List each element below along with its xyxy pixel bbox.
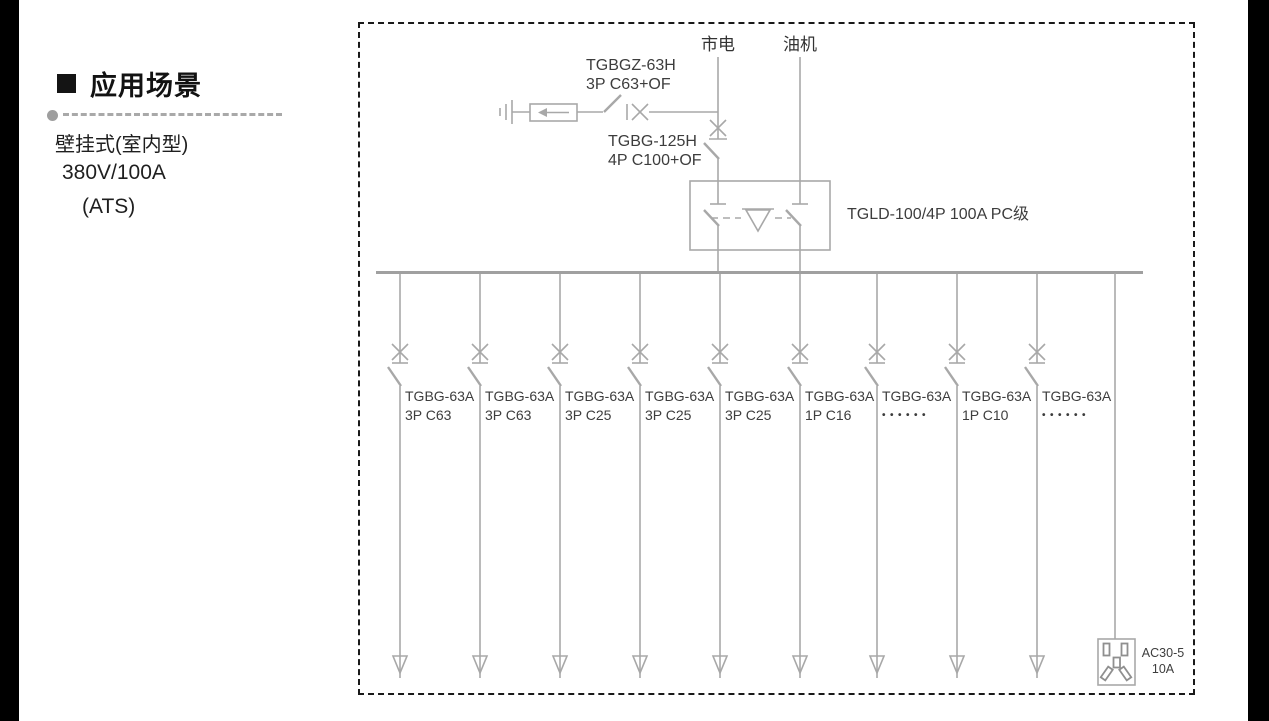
branch-spec: •••••• xyxy=(882,406,951,425)
branch-spec: 3P C63 xyxy=(485,406,554,425)
branch-label: TGBG-63A 3P C25 xyxy=(565,387,634,425)
generator-source-label: 油机 xyxy=(783,35,817,54)
branch-label: TGBG-63A 1P C16 xyxy=(805,387,874,425)
branch-spec: 3P C25 xyxy=(565,406,634,425)
branch-model: TGBG-63A xyxy=(405,387,474,406)
branch-tap-icon xyxy=(388,274,408,678)
page: 应用场景 壁挂式(室内型) 380V/100A (ATS) xyxy=(0,0,1269,721)
branch-model: TGBG-63A xyxy=(1042,387,1111,406)
branch-model: TGBG-63A xyxy=(962,387,1031,406)
spd-breaker-spec: 3P C63+OF xyxy=(586,75,676,94)
branch-label: TGBG-63A 1P C10 xyxy=(962,387,1031,425)
branch-tap-icon xyxy=(945,274,965,678)
socket-label: AC30-5 10A xyxy=(1138,645,1188,677)
branch-model: TGBG-63A xyxy=(485,387,554,406)
socket-drop-line xyxy=(1098,273,1135,685)
ground-icon xyxy=(500,100,512,124)
socket-rating: 10A xyxy=(1138,661,1188,677)
branch-spec: 1P C16 xyxy=(805,406,874,425)
branch-tap-icon xyxy=(548,274,568,678)
branch-model: TGBG-63A xyxy=(565,387,634,406)
branch-tap-icon xyxy=(1025,274,1045,678)
ats-switch-icon xyxy=(690,181,830,273)
circuit-diagram xyxy=(0,0,1269,721)
mains-source-label: 市电 xyxy=(701,35,735,54)
branch-label: TGBG-63A •••••• xyxy=(882,387,951,425)
branch-label: TGBG-63A 3P C25 xyxy=(725,387,794,425)
branch-tap-icon xyxy=(788,274,808,678)
branch-model: TGBG-63A xyxy=(725,387,794,406)
branch-spec: •••••• xyxy=(1042,406,1111,425)
branch-label: TGBG-63A 3P C25 xyxy=(645,387,714,425)
branch-label: TGBG-63A •••••• xyxy=(1042,387,1111,425)
branch-label: TGBG-63A 3P C63 xyxy=(485,387,554,425)
branch-label: TGBG-63A 3P C63 xyxy=(405,387,474,425)
branch-spec: 3P C25 xyxy=(725,406,794,425)
socket-icon xyxy=(1098,639,1135,685)
spd-breaker-icon xyxy=(604,95,648,120)
branch-tap-icon xyxy=(708,274,728,678)
spd-icon xyxy=(530,104,577,121)
spd-breaker-label: TGBGZ-63H 3P C63+OF xyxy=(586,56,676,94)
spd-breaker-model: TGBGZ-63H xyxy=(586,56,676,75)
main-breaker-model: TGBG-125H xyxy=(608,132,702,151)
branch-tap-icon xyxy=(865,274,885,678)
branch-spec: 3P C63 xyxy=(405,406,474,425)
main-breaker-label: TGBG-125H 4P C100+OF xyxy=(608,132,702,170)
branch-model: TGBG-63A xyxy=(805,387,874,406)
branch-spec: 1P C10 xyxy=(962,406,1031,425)
branch-tap-icon xyxy=(468,274,488,678)
branch-spec: 3P C25 xyxy=(645,406,714,425)
spd-branch xyxy=(500,95,718,124)
branch-model: TGBG-63A xyxy=(882,387,951,406)
ats-label: TGLD-100/4P 100A PC级 xyxy=(847,205,1029,224)
mains-feed-line xyxy=(704,57,727,204)
branch-model: TGBG-63A xyxy=(645,387,714,406)
main-breaker-icon xyxy=(704,120,727,159)
main-breaker-spec: 4P C100+OF xyxy=(608,151,702,170)
branch-tap-icon xyxy=(628,274,648,678)
socket-model: AC30-5 xyxy=(1138,645,1188,661)
